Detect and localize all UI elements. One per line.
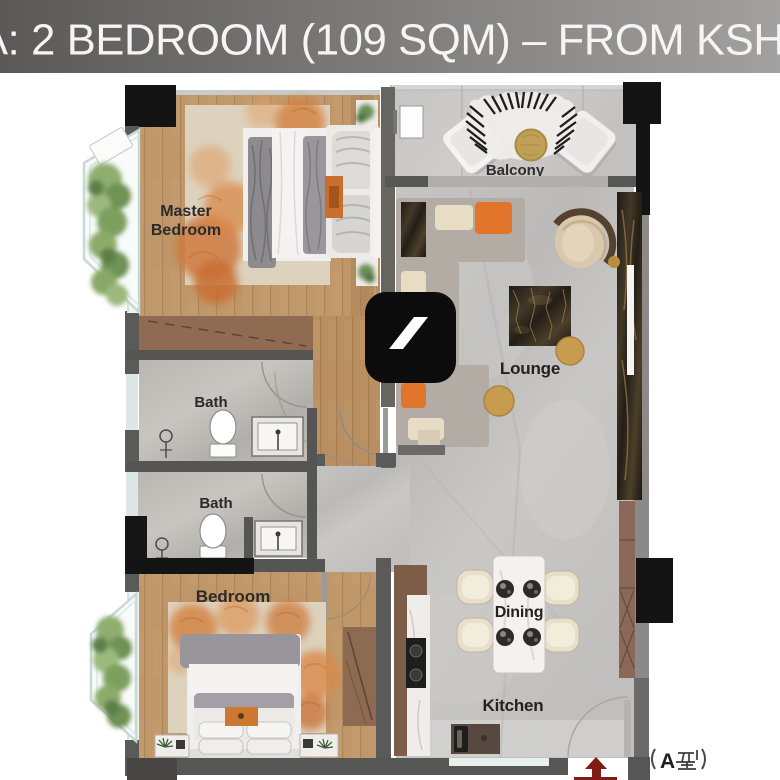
svg-text:Bath: Bath [199,495,232,512]
svg-text:Dining: Dining [495,604,544,621]
svg-text:A: A [660,750,675,773]
svg-text:Kitchen: Kitchen [483,696,544,715]
svg-text:Bedroom: Bedroom [196,587,271,606]
svg-text:Bath: Bath [194,394,227,411]
svg-text:Master: Master [160,203,212,220]
svg-text:Lounge: Lounge [500,359,560,378]
svg-text:A: 2 BEDROOM (109 SQM) – FROM: A: 2 BEDROOM (109 SQM) – FROM KSH 1 [0,17,780,65]
svg-text:Bedroom: Bedroom [151,222,221,239]
